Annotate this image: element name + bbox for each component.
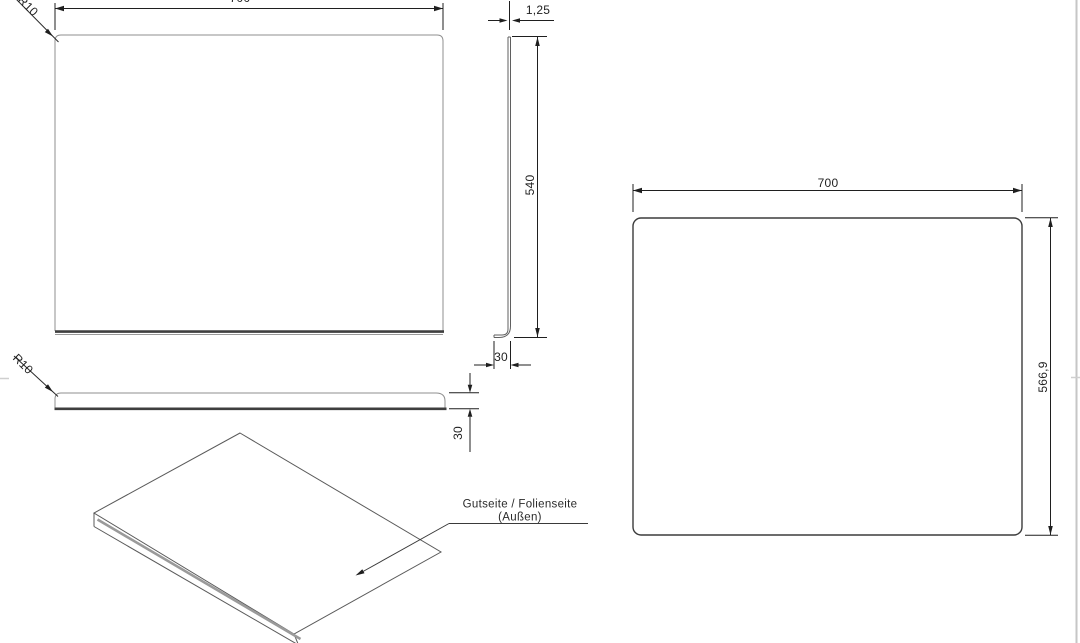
front-width-dimension [55, 3, 443, 30]
side-view-outline [494, 37, 511, 338]
flat-width-dim-label: 700 [818, 177, 839, 189]
surface-note-line2: (Außen) [498, 512, 542, 524]
side-height-dim-label: 540 [524, 175, 536, 196]
bottom-flange-dim-label: 30 [452, 426, 464, 440]
iso-bend-tangent-edge [98, 520, 301, 640]
bottom-view-outline [55, 393, 445, 409]
isometric-view [94, 433, 441, 643]
drawing-sheet: 700 R10 1,25 540 30 R10 30 700 566,9 Gut… [0, 0, 1080, 643]
surface-note-line1: Gutseite / Folienseite [463, 499, 578, 511]
sheet-border [0, 0, 1080, 643]
drawing-canvas [0, 0, 1080, 643]
thickness-dim-label: 1,25 [526, 4, 550, 16]
bottom-flange-dimension [449, 373, 479, 452]
side-flange-dim-label: 30 [494, 351, 508, 363]
note-leader [356, 524, 589, 576]
front-width-dim-label: 700 [230, 0, 251, 4]
flat-height-dim-label: 566,9 [1037, 361, 1049, 392]
front-view-outline [55, 35, 443, 335]
flat-pattern-outline [633, 218, 1022, 535]
